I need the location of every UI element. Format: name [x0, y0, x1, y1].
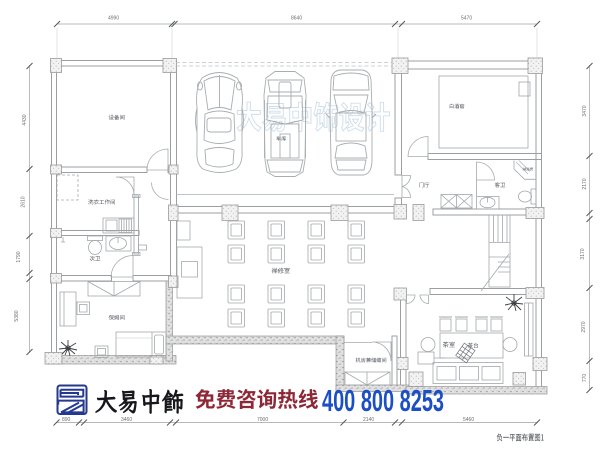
svg-text:2610: 2610	[21, 196, 27, 207]
svg-text:400 800 8253: 400 800 8253	[322, 384, 444, 418]
svg-text:3470: 3470	[582, 105, 588, 116]
svg-text:5380: 5380	[14, 310, 20, 321]
svg-text:890: 890	[62, 417, 71, 423]
svg-text:2970: 2970	[581, 321, 587, 332]
svg-text:7000: 7000	[257, 417, 268, 423]
svg-text:3460: 3460	[121, 417, 132, 423]
svg-text:4430: 4430	[22, 114, 28, 125]
svg-text:2170: 2170	[582, 178, 588, 189]
svg-text:4990: 4990	[108, 16, 119, 22]
svg-text:8640: 8640	[291, 16, 302, 22]
svg-text:1790: 1790	[16, 251, 22, 262]
svg-text:3170: 3170	[580, 248, 586, 259]
svg-text:5460: 5460	[463, 417, 474, 423]
svg-text:5470: 5470	[461, 16, 472, 22]
svg-text:770: 770	[582, 374, 588, 383]
